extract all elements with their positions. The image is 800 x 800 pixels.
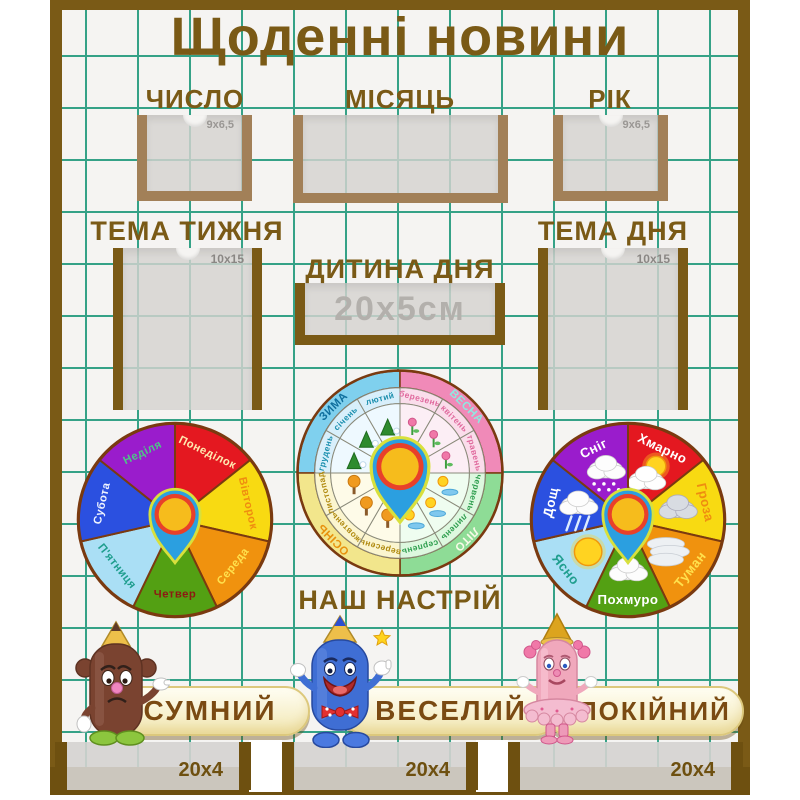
week-days-wheel[interactable]: ПонеділокВівторокСередаЧетверП'ятницяСуб… bbox=[75, 420, 275, 620]
wheel-label: Четвер bbox=[154, 589, 196, 601]
happy-pencil-character bbox=[280, 612, 400, 748]
pocket-notch bbox=[599, 115, 623, 127]
child-of-day-pocket[interactable]: 20х5см bbox=[295, 283, 505, 345]
sad-pencil-character bbox=[62, 618, 170, 746]
pocket-size-tag: 9x6,5 bbox=[206, 119, 234, 131]
pocket-gap bbox=[249, 740, 282, 792]
board-frame: Щоденні новини ЧИСЛО МІСЯЦЬ РІК 9x6,5 9x… bbox=[50, 0, 750, 795]
pocket-notch bbox=[176, 248, 200, 260]
pocket-size-tag: 10x15 bbox=[211, 252, 244, 266]
year-label: РІК bbox=[525, 84, 695, 115]
day-theme-label: ТЕМА ДНЯ bbox=[503, 216, 723, 247]
months-seasons-wheel[interactable]: груденьсіченьлютийЗИМАберезеньквітеньтра… bbox=[293, 366, 507, 580]
pocket-notch bbox=[601, 248, 625, 260]
pocket-size-tag: 20x4 bbox=[671, 759, 716, 782]
week-theme-label: ТЕМА ТИЖНЯ bbox=[77, 216, 297, 247]
month-pocket[interactable] bbox=[293, 115, 508, 203]
pocket-size-tag: 9x6,5 bbox=[622, 119, 650, 131]
fog-icon bbox=[647, 538, 689, 566]
pocket-size-tag: 20x4 bbox=[406, 759, 451, 782]
page-title: Щоденні новини bbox=[50, 6, 750, 68]
child-of-day-label: ДИТИНА ДНЯ bbox=[290, 254, 510, 285]
year-pocket[interactable]: 9x6,5 bbox=[553, 115, 668, 201]
date-label: ЧИСЛО bbox=[110, 84, 280, 115]
weather-wheel[interactable]: ХмарноГрозаТуманПохмуроЯсноДощСніг bbox=[528, 420, 728, 620]
bottom-pocket-1[interactable]: 20x4 bbox=[55, 742, 251, 790]
pocket-size-tag: 10x15 bbox=[637, 252, 670, 266]
daily-news-stand: Щоденні новини ЧИСЛО МІСЯЦЬ РІК 9x6,5 9x… bbox=[0, 0, 800, 800]
date-pocket[interactable]: 9x6,5 bbox=[137, 115, 252, 201]
bottom-pocket-2[interactable]: 20x4 bbox=[282, 742, 478, 790]
pocket-notch bbox=[183, 115, 207, 127]
sun-icon bbox=[570, 534, 605, 569]
day-theme-pocket[interactable]: 10x15 bbox=[538, 248, 688, 410]
wheel-label: Похмуро bbox=[598, 592, 659, 607]
week-theme-pocket[interactable]: 10x15 bbox=[113, 248, 262, 410]
calm-pencil-character bbox=[502, 612, 612, 748]
bottom-pocket-3[interactable]: 20x4 bbox=[508, 742, 743, 790]
month-label: МІСЯЦЬ bbox=[315, 84, 485, 115]
pocket-size-tag: 20x4 bbox=[179, 759, 224, 782]
pocket-size-tag: 20х5см bbox=[305, 283, 495, 335]
